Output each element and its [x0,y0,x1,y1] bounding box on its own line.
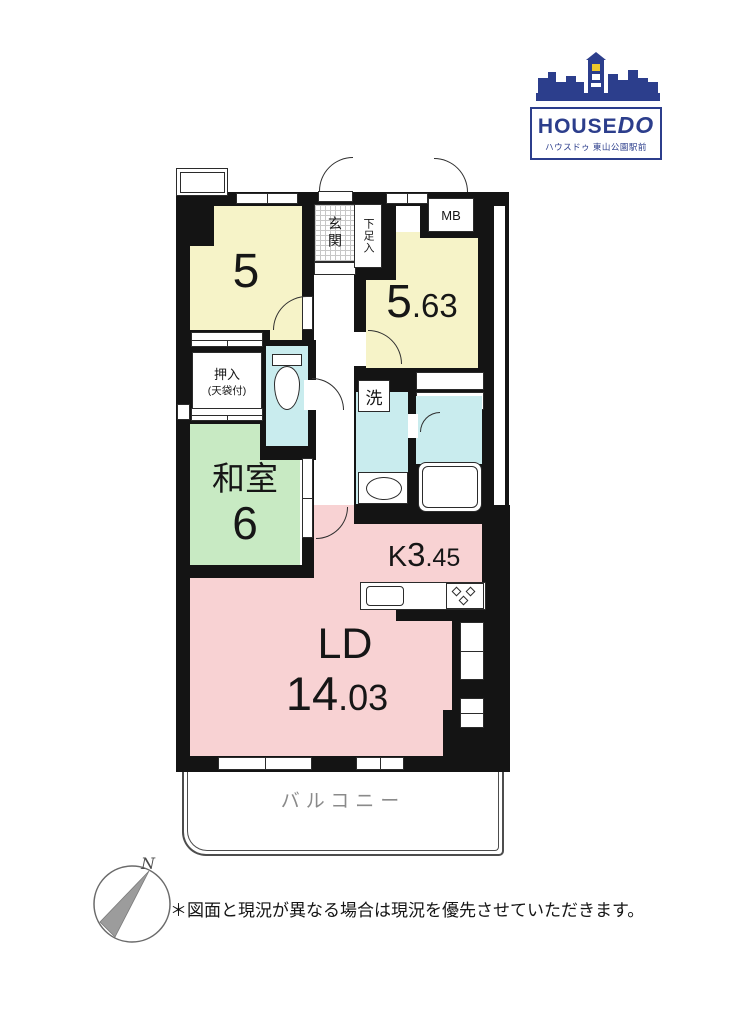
ld-name: LD [318,620,373,669]
burner-icon [452,587,462,597]
ld-main: 14 [286,666,338,721]
window [218,757,312,770]
wall [176,192,214,246]
kitchen-decimal: .45 [425,544,460,573]
ld-label: LD [300,620,390,669]
burner-icon [466,587,476,597]
door-opening [354,332,366,366]
meter-box: MB [428,198,474,232]
logo-subtitle: ハウスドゥ 東山公園駅前 [532,141,660,153]
room-563-decimal: .63 [412,287,458,325]
toilet-tank-icon [272,354,302,366]
window [386,193,428,204]
stove-icon [446,583,484,609]
ld-decimal: .03 [338,677,388,719]
ld-size-label: 14.03 [262,666,412,721]
closet-sliding-door [191,332,263,347]
kitchen-main: 3 [407,536,425,574]
laundry-label: 洗 [366,384,383,409]
compass-north-label: N [140,854,156,873]
room-5-value: 5 [233,244,260,299]
room-563-main: 5 [386,274,412,328]
housedo-skyline-icon [536,52,660,106]
laundry-box: 洗 [358,380,390,412]
bathtub-icon [418,462,482,512]
washitsu-size: 6 [232,496,258,550]
kitchen-sink-icon [366,586,404,606]
window [177,404,190,420]
window [460,698,484,728]
room-563-label: 5.63 [366,274,478,328]
compass-icon: N [86,854,178,950]
logo-brand-do: DO [618,112,655,138]
room-563-fill [394,232,478,280]
door-arc [319,157,353,191]
shoe-storage-label: 下足入 [360,218,376,254]
window [236,193,298,204]
logo-brand: HOUSEDO [532,114,660,137]
shoe-storage-box: 下足入 [354,204,382,268]
washitsu-size-label: 6 [195,496,295,550]
floorplan-page: HOUSEDO ハウスドゥ 東山公園駅前 玄関 下足入 MB [0,0,740,1010]
washitsu-label: 和室 [195,452,295,500]
genkan-step [314,262,356,275]
storage-box [416,372,484,390]
balcony-outline: バルコニー [182,772,504,856]
genkan-area: 玄関 [314,204,356,262]
outer-edge-line [505,192,509,512]
door-opening [408,414,418,438]
housedo-logo: HOUSEDO ハウスドゥ 東山公園駅前 [528,50,668,162]
wall [176,192,190,772]
washitsu-sliding-door [302,458,313,538]
genkan-label: 玄関 [325,216,345,250]
kitchen-label: K3.45 [366,536,482,574]
door-arc [434,158,468,192]
window [356,757,404,770]
compass-needle [100,871,149,937]
closet-label: 押入 [214,364,240,383]
sink-basin-icon [366,477,402,500]
disclaimer-text: ＊図面と現況が異なる場合は現況を優先させていただきます。 [170,896,670,921]
logo-text-box: HOUSEDO ハウスドゥ 東山公園駅前 [530,107,662,160]
burner-icon [459,596,469,606]
door-arc [312,378,344,410]
washitsu-name: 和室 [212,452,278,500]
closet-sublabel: (天袋付) [208,383,247,398]
lighthouse-light [592,64,600,71]
closet-sliding-door [191,408,263,421]
door-leaf [318,191,353,202]
pipe-space-box [176,168,228,196]
closet-box: 押入 (天袋付) [192,352,262,410]
room-5-label: 5 [196,244,296,299]
window [460,622,484,680]
meter-box-label: MB [441,208,461,223]
balcony-label: バルコニー [184,786,502,813]
wall [176,565,314,578]
kitchen-name: K [388,541,407,574]
